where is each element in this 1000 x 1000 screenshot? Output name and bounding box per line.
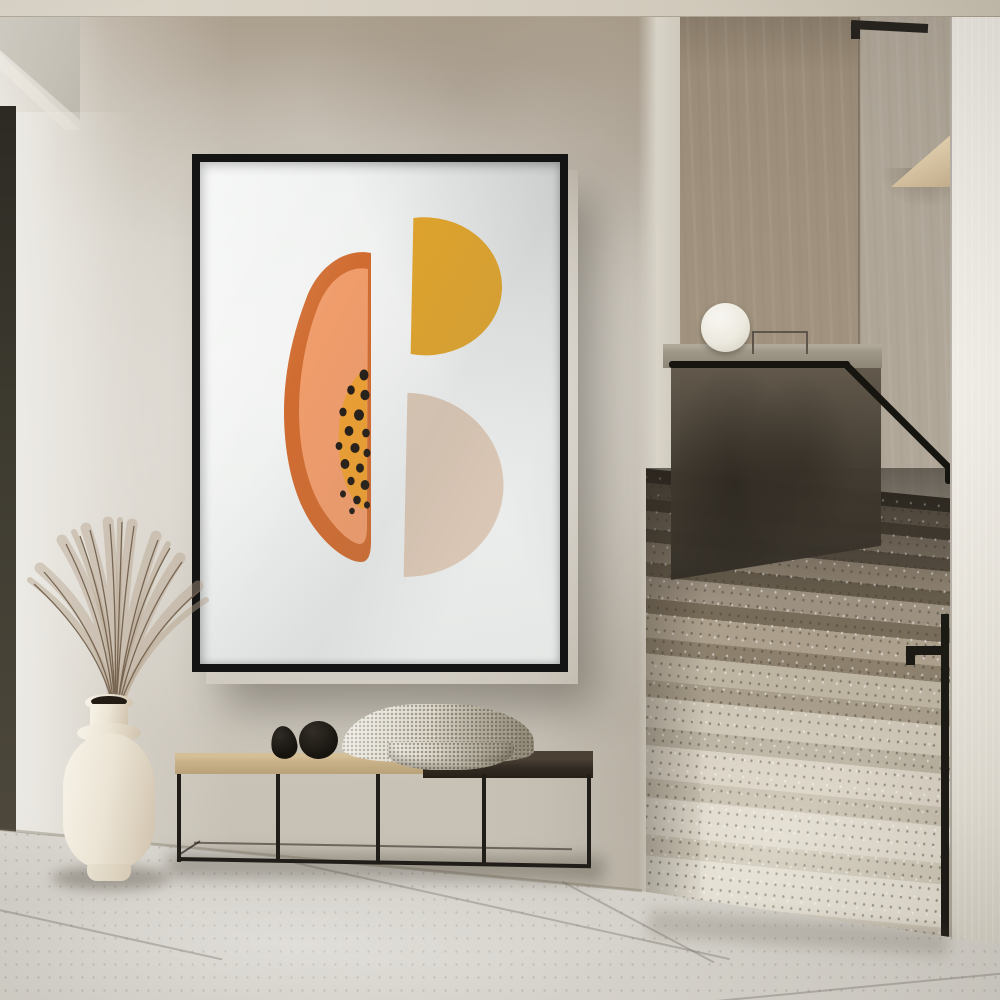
framed-poster <box>192 154 568 672</box>
stairwell-corner-edge <box>858 14 860 346</box>
stairs-light-patch <box>700 700 960 940</box>
interior-scene <box>0 0 1000 1000</box>
bench-leg <box>376 774 380 862</box>
vase-foot <box>87 864 131 881</box>
upper-floor-handrail-end <box>851 22 860 39</box>
bench-leg <box>276 774 280 862</box>
sphere-lamp <box>701 303 750 352</box>
handrail-bracket-tab <box>906 646 915 665</box>
bench-leg <box>587 774 591 866</box>
ceiling <box>0 0 1000 17</box>
bench-leg <box>177 774 181 862</box>
left-door-frame <box>0 106 16 832</box>
vase-body <box>63 733 155 869</box>
pampas-grass <box>10 510 230 720</box>
bench-leg <box>482 774 486 864</box>
poster-print <box>200 162 560 664</box>
pillar-edge-line <box>950 0 952 944</box>
lamp-stand-frame <box>752 331 808 354</box>
handrail-post <box>941 614 949 938</box>
handrail-horizontal <box>669 361 850 368</box>
glass-balustrade-panel <box>671 366 881 580</box>
right-pillar-wall <box>950 0 1000 944</box>
glass-glare <box>200 162 560 664</box>
